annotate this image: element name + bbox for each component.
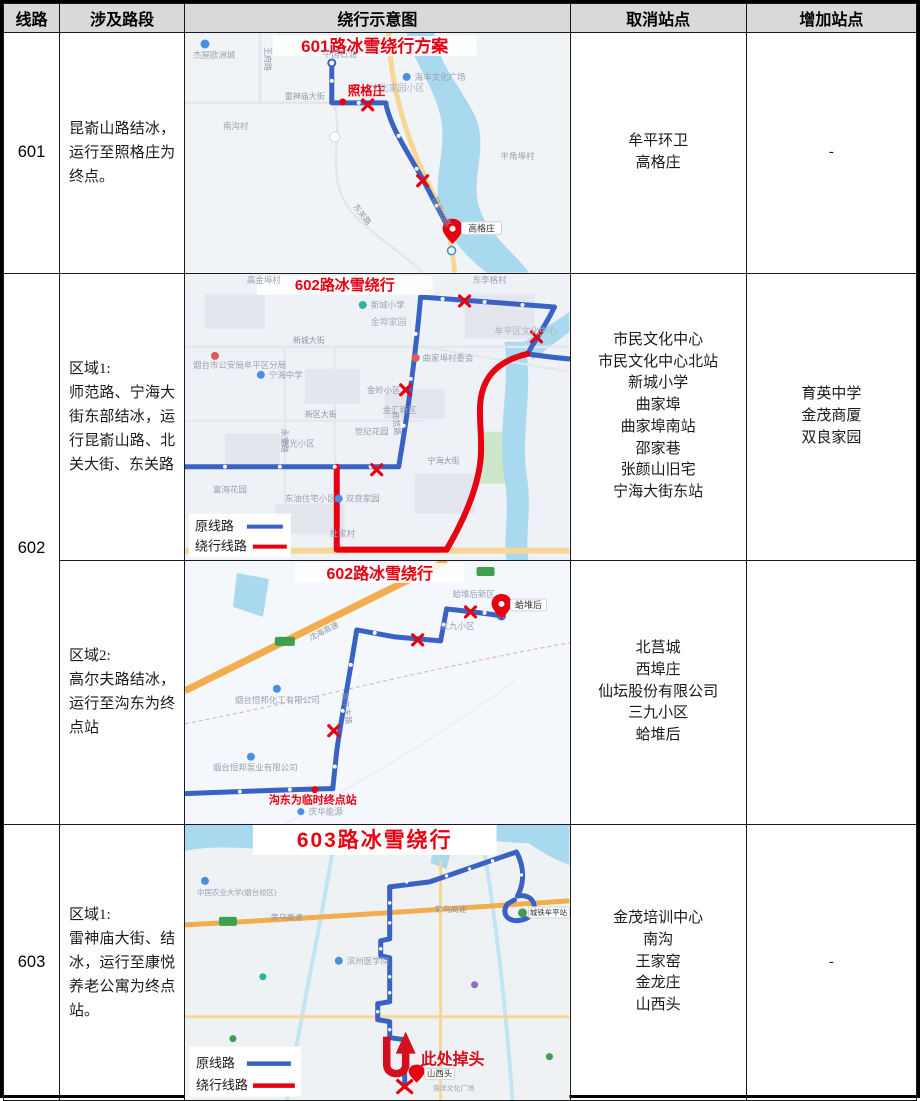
cancelled-stop: 曲家埠南站 xyxy=(571,417,746,439)
cancelled-stop: 市民文化中心 xyxy=(571,330,746,352)
poi-label: 杰屋欧洲城 xyxy=(193,50,236,60)
map-603: 603路冰雪绕行 此处掉头 山西头 原线路 绕行线路 荣乌高速 荣乌高速 中国农… xyxy=(185,825,569,1101)
uturn-label: 此处掉头 xyxy=(421,1049,485,1068)
cancelled-stop: 北莒城 xyxy=(571,638,746,660)
map-pin-inner xyxy=(499,601,505,607)
route-dot xyxy=(445,874,448,877)
line-number: 603 xyxy=(4,953,59,972)
poi-label: 富海花园 xyxy=(213,484,247,494)
cancelled-stop: 曲家埠 xyxy=(571,395,746,417)
cancelled-stop: 张颜山旧宅 xyxy=(571,460,746,482)
poi-icon xyxy=(403,73,411,81)
line-number: 601 xyxy=(4,143,59,162)
road-label: 荣乌高速 xyxy=(271,912,303,922)
poi-icon xyxy=(273,685,281,693)
bus-stop-icon xyxy=(448,247,456,255)
poi-label: 文化家园小区 xyxy=(371,82,425,93)
route-dot xyxy=(388,975,391,978)
row-601: 601 昆嵛山路结冰，运行至照格庄为终点。 xyxy=(4,33,917,274)
road-label: 雷神庙大街 xyxy=(285,91,325,101)
poi-icon xyxy=(471,981,478,988)
cancelled-stops-list: 牟平环卫 高格庄 xyxy=(571,131,746,175)
section-desc-cell: 区域2:高尔夫路结冰，运行至沟东为终点站 xyxy=(60,561,185,825)
header-cell-cancelled: 取消站点 xyxy=(570,4,746,33)
map-cell-602-2: 沟东为临时终点站 蛤堆后 602路冰雪绕行 沈海高速 高尔夫路 蛤堆后新区 三九… xyxy=(185,561,570,825)
road-label: 荣乌高速 xyxy=(435,904,467,914)
cancelled-stop: 仙坛股份有限公司 xyxy=(571,682,746,704)
route-dot xyxy=(357,101,361,105)
section-description: 区域1:雷神庙大街、结冰，运行至康悦养老公寓为终点站。 xyxy=(60,903,184,1023)
poi-label: 庆华能源 xyxy=(309,807,343,817)
poi-label: 金埠家园 xyxy=(371,316,407,327)
map-cell-601: 601路冰雪绕行方案 照格庄 高格庄 雷神庙大街 王府路 东关路 昆嵛山路 杰屋… xyxy=(185,33,570,274)
poi-icon xyxy=(211,352,219,360)
line-number: 602 xyxy=(4,539,59,558)
poi-icon xyxy=(247,753,255,761)
section-desc-cell: 区域1:雷神庙大街、结冰，运行至康悦养老公寓为终点站。 xyxy=(60,824,185,1101)
cancelled-stop: 山西头 xyxy=(571,995,746,1017)
route-dot xyxy=(491,859,494,862)
legend-original-label: 原线路 xyxy=(195,518,234,533)
section-description: 昆嵛山路结冰，运行至照格庄为终点。 xyxy=(60,117,184,189)
poi-label: 烟台恒邦泵业有限公司 xyxy=(213,763,298,773)
map-title: 602路冰雪绕行 xyxy=(295,276,395,294)
section-desc-cell: 昆嵛山路结冰，运行至照格庄为终点。 xyxy=(60,33,185,274)
road-label: 王府路 xyxy=(263,47,273,71)
cancelled-stop: 南沟 xyxy=(571,930,746,952)
poi-label: 海洋文化广场 xyxy=(433,1083,475,1092)
poi-label: 烟台市公安局牟平区分局 xyxy=(193,359,286,369)
line-number-cell: 603 xyxy=(4,824,60,1101)
building-block xyxy=(225,433,280,463)
poi-label: 金汇新区 xyxy=(383,404,417,414)
legend-detour-label: 绕行线路 xyxy=(196,1077,248,1092)
terminal-stop-label: 沟东为临时终点站 xyxy=(269,793,357,807)
added-stop: 金茂商厦 xyxy=(747,406,916,428)
pin-label: 蛤堆后 xyxy=(515,599,542,610)
route-dot xyxy=(278,464,282,468)
cancelled-stop: 宁海大街东站 xyxy=(571,482,746,504)
route-dot xyxy=(409,376,413,380)
poi-icon xyxy=(201,877,209,885)
cancelled-stop: 蛤堆后 xyxy=(571,725,746,747)
poi-label: 中国农业大学(烟台校区) xyxy=(197,887,277,897)
poi-icon xyxy=(201,39,210,48)
cancelled-stop: 金龙庄 xyxy=(571,973,746,995)
area-label: 区域1: xyxy=(69,903,175,927)
header-cell-added: 增加站点 xyxy=(746,4,916,33)
poi-label: 牟平区文化中心 xyxy=(495,325,558,336)
route-dot xyxy=(414,332,418,336)
poi-label: 中国石油 xyxy=(323,49,357,59)
poi-label: 东油住宅小区 xyxy=(285,493,336,503)
row-603: 603 区域1:雷神庙大街、结冰，运行至康悦养老公寓为终点站。 xyxy=(4,824,917,1101)
added-stops-cell-empty xyxy=(746,561,916,825)
map-602-area1: 602路冰雪绕行 原线路 绕行线路 新城大街 新区大街 宁海大街 永安路 师范路… xyxy=(185,274,569,561)
header-row: 线路 涉及路段 绕行示意图 取消站点 增加站点 xyxy=(4,4,917,33)
map-cell-602-1: 602路冰雪绕行 原线路 绕行线路 新城大街 新区大街 宁海大街 永安路 师范路… xyxy=(185,273,570,561)
detour-notice-table: 线路 涉及路段 绕行示意图 取消站点 增加站点 601 昆嵛山路结冰，运行至照格… xyxy=(0,0,920,1098)
route-dot xyxy=(483,611,487,615)
map-title: 603路冰雪绕行 xyxy=(297,828,453,852)
expressway-badge xyxy=(219,917,237,926)
area-description: 师范路、宁海大街东部结冰，运行昆嵛山路、北关大街、东关路 xyxy=(69,385,175,473)
added-stop: 育英中学 xyxy=(747,384,916,406)
route-dot xyxy=(388,901,391,904)
poi-label: 滨州医学院 xyxy=(347,956,390,966)
cancelled-stop: 牟平环卫 xyxy=(571,131,746,153)
cancelled-stops-cell: 金茂培训中心 南沟 王家窑 金龙庄 山西头 xyxy=(570,824,746,1101)
section-desc-cell: 区域1:师范路、宁海大街东部结冰，运行昆嵛山路、北关大街、东关路 xyxy=(60,273,185,561)
cancelled-stop: 邵家巷 xyxy=(571,439,746,461)
poi-icon xyxy=(359,301,367,309)
poi-label: 宁海中学 xyxy=(269,369,303,379)
map-cell-603: 603路冰雪绕行 此处掉头 山西头 原线路 绕行线路 荣乌高速 荣乌高速 中国农… xyxy=(185,824,570,1101)
added-stops-cell: 育英中学 金茂商厦 双良家园 xyxy=(746,273,916,561)
poi-label: 杜家村 xyxy=(330,528,356,538)
poi-label: 三九小区 xyxy=(441,621,475,631)
poi-icon xyxy=(257,370,265,378)
cancelled-stop: 市民文化中心北站 xyxy=(571,352,746,374)
building-block xyxy=(205,294,265,329)
area-label: 区域1: xyxy=(69,357,175,381)
poi-label: 东李格村 xyxy=(473,275,507,285)
expressway-badge xyxy=(477,567,495,576)
roundabout xyxy=(330,132,340,142)
route-dot xyxy=(468,867,471,870)
route-start-dot xyxy=(328,59,335,66)
poi-icon xyxy=(230,1035,237,1042)
route-dot xyxy=(397,134,401,138)
line-number-cell: 601 xyxy=(4,33,60,274)
cancelled-stop: 新城小学 xyxy=(571,373,746,395)
cancelled-stop: 王家窑 xyxy=(571,952,746,974)
cancelled-stops-cell: 市民文化中心 市民文化中心北站 新城小学 曲家埠 曲家埠南站 邵家巷 张颜山旧宅… xyxy=(570,273,746,561)
line-number-cell: 602 xyxy=(4,273,60,824)
cancelled-stops-list: 市民文化中心 市民文化中心北站 新城小学 曲家埠 曲家埠南站 邵家巷 张颜山旧宅… xyxy=(571,330,746,504)
station-icon xyxy=(518,908,527,917)
cancelled-stop: 金茂培训中心 xyxy=(571,908,746,930)
cancelled-stop: 三九小区 xyxy=(571,703,746,725)
poi-icon xyxy=(546,1053,553,1060)
route-dot xyxy=(379,947,382,950)
route-dot xyxy=(415,167,419,171)
route-dot xyxy=(238,790,242,794)
route-dot xyxy=(520,873,523,876)
route-dot xyxy=(373,631,377,635)
poi-label: 高金埠村 xyxy=(247,275,281,285)
row-602-area2: 区域2:高尔夫路结冰，运行至沟东为终点站 xyxy=(4,561,917,825)
pin-label: 高格庄 xyxy=(468,223,495,234)
poi-label: 南沟村 xyxy=(223,121,249,131)
terminal-stop-dot xyxy=(311,786,318,793)
area-description: 高尔夫路结冰，运行至沟东为终点站 xyxy=(69,672,175,736)
area-description: 雷神庙大街、结冰，运行至康悦养老公寓为终点站。 xyxy=(69,931,175,1019)
route-dot xyxy=(388,1028,391,1031)
poi-icon xyxy=(298,808,305,815)
map-title: 602路冰雪绕行 xyxy=(327,564,434,583)
route-dot xyxy=(333,464,337,468)
poi-label: 新城小学 xyxy=(371,300,405,310)
route-dot xyxy=(521,303,525,307)
route-dot xyxy=(483,300,487,304)
cancelled-stops-cell: 牟平环卫 高格庄 xyxy=(570,33,746,274)
section-description: 区域2:高尔夫路结冰，运行至沟东为终点站 xyxy=(60,644,184,740)
road-label: 宁海大街 xyxy=(428,455,460,465)
poi-icon xyxy=(260,973,267,980)
poi-label: 蛤堆后新区 xyxy=(453,589,496,599)
poi-icon xyxy=(335,957,343,965)
legend-detour-label: 绕行线路 xyxy=(195,538,247,553)
added-stops-list: - xyxy=(747,952,916,974)
poi-label: 城铁牟平站 xyxy=(530,907,568,917)
route-dot xyxy=(333,765,337,769)
building-block xyxy=(305,368,360,403)
road-label: 新城大街 xyxy=(293,335,325,345)
poi-label: 烟台恒邦化工有限公司 xyxy=(235,695,320,705)
route-dot xyxy=(288,788,292,792)
route-dot xyxy=(441,297,445,301)
poi-label: 世纪花园 xyxy=(355,426,389,436)
added-stop-dash: - xyxy=(747,952,916,974)
poi-label: 曲家埠村委会 xyxy=(423,352,474,362)
route-dot xyxy=(330,79,334,83)
cancelled-stops-list: 金茂培训中心 南沟 王家窑 金龙庄 山西头 xyxy=(571,908,746,1017)
route-dot xyxy=(388,921,391,924)
cancelled-stop: 高格庄 xyxy=(571,153,746,175)
route-dot xyxy=(405,880,408,883)
added-stops-cell: - xyxy=(746,33,916,274)
road-label: 新区大街 xyxy=(305,408,337,418)
route-dot xyxy=(402,423,406,427)
poi-label: 海丰文化广场 xyxy=(415,72,466,82)
header-cell-sections: 涉及路段 xyxy=(60,4,185,33)
legend-original-label: 原线路 xyxy=(196,1055,235,1070)
cancelled-stop: 西埠庄 xyxy=(571,660,746,682)
poi-icon xyxy=(412,354,420,362)
route-dot xyxy=(388,991,391,994)
cancelled-stops-cell: 北莒城 西埠庄 仙坛股份有限公司 三九小区 蛤堆后 xyxy=(570,561,746,825)
section-description: 区域1:师范路、宁海大街东部结冰，运行昆嵛山路、北关大街、东关路 xyxy=(60,357,184,477)
pin-label: 山西头 xyxy=(427,1068,452,1078)
map-601: 601路冰雪绕行方案 照格庄 高格庄 雷神庙大街 王府路 东关路 昆嵛山路 杰屋… xyxy=(185,33,569,273)
route-dot xyxy=(223,464,227,468)
terminal-stop-dot xyxy=(339,98,346,105)
poi-label: 双良家园 xyxy=(346,493,380,503)
poi-label: 半角埠村 xyxy=(501,151,535,161)
added-stops-list: - xyxy=(747,142,916,164)
added-stops-cell: - xyxy=(746,824,916,1101)
poi-label: 金岭小区 xyxy=(367,384,401,394)
added-stop: 双良家园 xyxy=(747,428,916,450)
header-cell-map: 绕行示意图 xyxy=(185,4,570,33)
area-label: 区域2: xyxy=(69,644,175,668)
added-stop-dash: - xyxy=(747,142,916,164)
poi-label: 曙光小区 xyxy=(281,438,315,448)
route-dot xyxy=(349,663,353,667)
header-cell-line: 线路 xyxy=(4,4,60,33)
map-pin-inner xyxy=(450,226,456,232)
route-table: 线路 涉及路段 绕行示意图 取消站点 增加站点 601 昆嵛山路结冰，运行至照格… xyxy=(3,3,917,1101)
row-602-area1: 602 区域1:师范路、宁海大街东部结冰，运行昆嵛山路、北关大街、东关路 xyxy=(4,273,917,561)
cancelled-stops-list: 北莒城 西埠庄 仙坛股份有限公司 三九小区 蛤堆后 xyxy=(571,638,746,747)
poi-icon xyxy=(335,494,343,502)
map-602-area2: 沟东为临时终点站 蛤堆后 602路冰雪绕行 沈海高速 高尔夫路 蛤堆后新区 三九… xyxy=(185,561,569,824)
expressway-badge xyxy=(275,637,295,646)
added-stops-list: 育英中学 金茂商厦 双良家园 xyxy=(747,384,916,449)
route-dot xyxy=(376,1010,379,1013)
